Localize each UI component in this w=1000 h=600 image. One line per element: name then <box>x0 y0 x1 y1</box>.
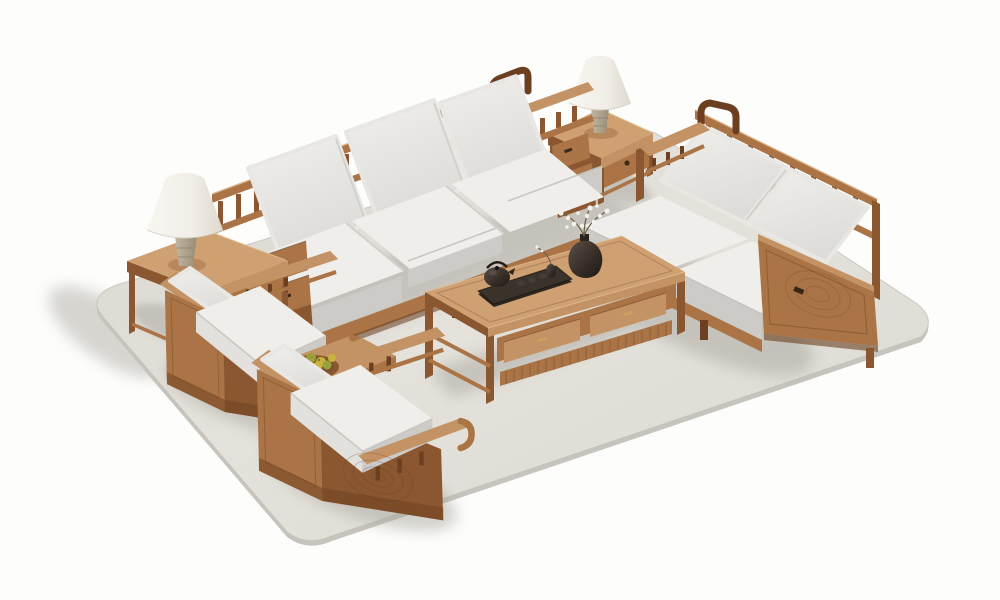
drawer-knob <box>624 160 629 165</box>
furniture-product-image <box>0 0 1000 600</box>
scene-canvas <box>0 0 1000 600</box>
